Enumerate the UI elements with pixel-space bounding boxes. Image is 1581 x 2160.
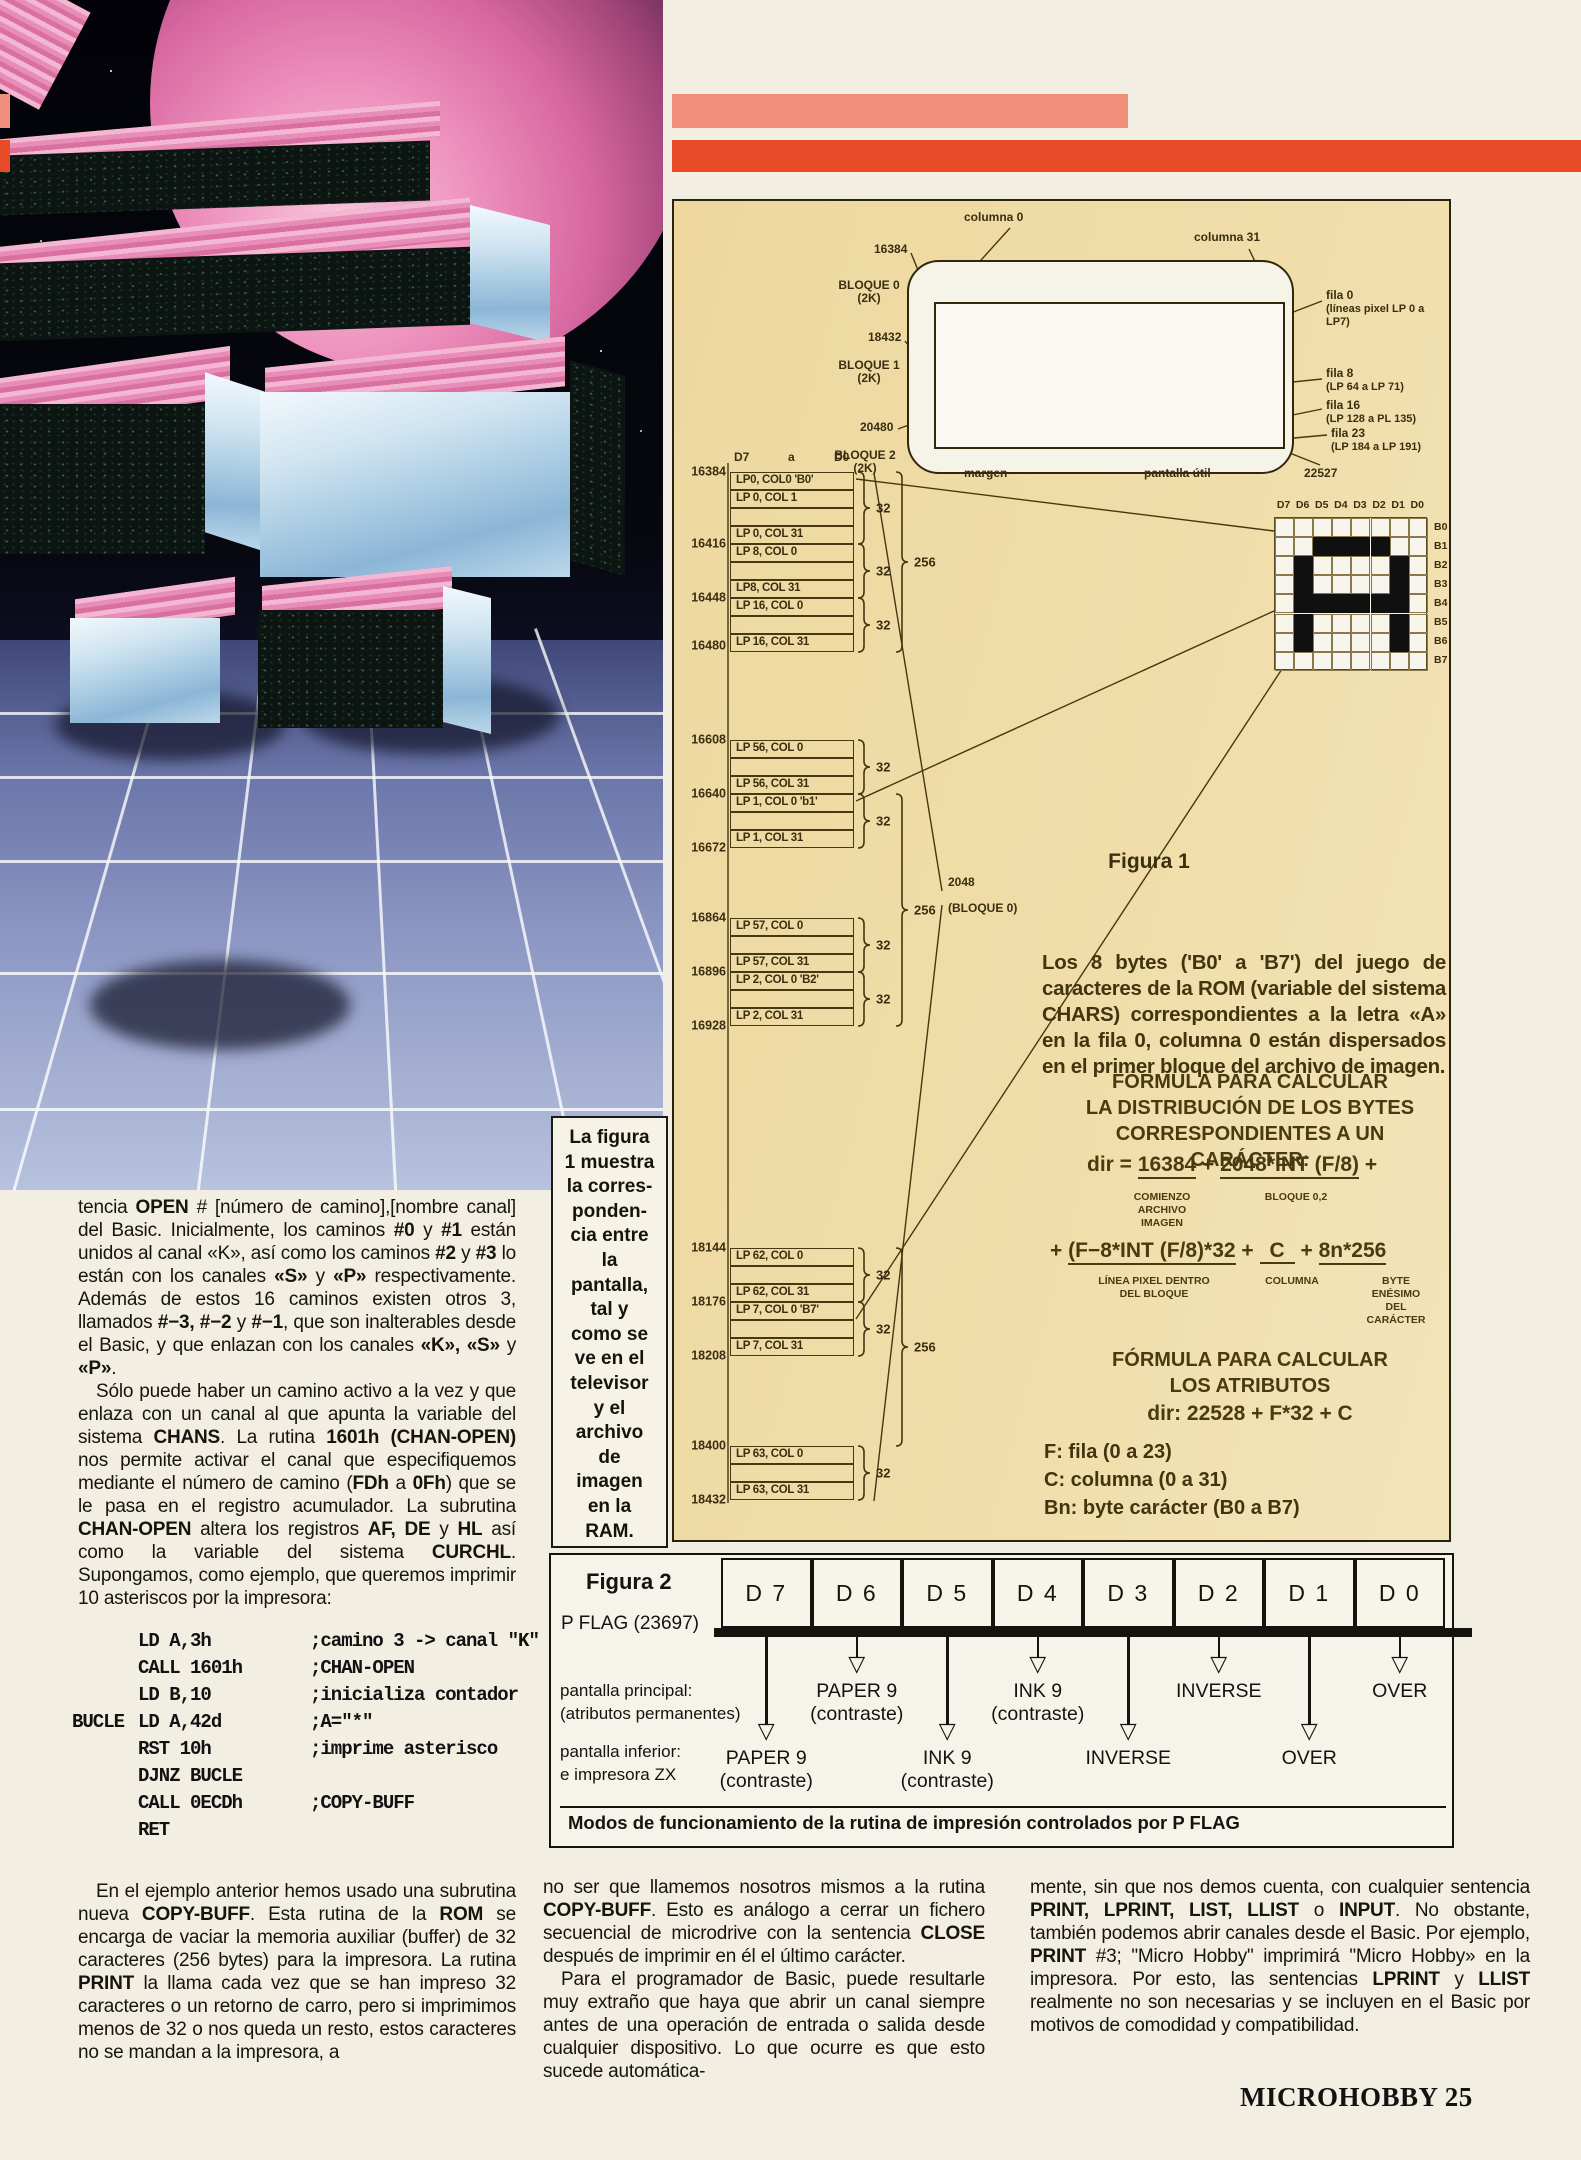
char-grid-cell [1409, 537, 1428, 556]
char-grid-header: D6 [1296, 499, 1309, 511]
char-grid-cell [1351, 594, 1370, 613]
char-grid-cell [1294, 594, 1313, 613]
char-grid-cell [1275, 652, 1294, 671]
memory-map-cell: LP 62, COL 0 [730, 1248, 854, 1266]
char-grid-cell [1390, 652, 1409, 671]
map-brace [858, 918, 870, 972]
pflag-bit-box: D 0 [1355, 1558, 1446, 1628]
memory-map-address: 16480 [691, 638, 726, 652]
memory-map-address: 16608 [691, 732, 726, 746]
char-grid-cell [1351, 518, 1370, 537]
code-line: LD A,3h;camino 3 -> canal "K" [72, 1628, 542, 1655]
block-2048-label: 2048 (BLOQUE 0) [948, 863, 1017, 915]
tv-label-22527: 22527 [1304, 467, 1337, 480]
memory-map-address: 16928 [691, 1018, 726, 1032]
char-grid-cell [1313, 614, 1332, 633]
pflag-mode-label: OVER [1320, 1680, 1480, 1703]
memory-map-cell: LP 57, COL 31 [730, 954, 854, 972]
bus-a: a [788, 451, 795, 464]
row1-subheading: (atributos permanentes) [560, 1704, 740, 1724]
memory-map-cell: LP 7, COL 31 [730, 1338, 854, 1356]
page-footer: MICROHOBBY 25 [1240, 2082, 1473, 2113]
char-grid-row-label: B3 [1434, 578, 1447, 590]
pflag-bit-box: D 4 [993, 1558, 1084, 1628]
memory-map-cell: LP 7, COL 0 'B7' [730, 1302, 854, 1320]
map-brace-label: 32 [876, 618, 890, 633]
char-grid-cell [1371, 594, 1390, 613]
memory-map-cell: LP 16, COL 31 [730, 634, 854, 652]
memory-map-cell [730, 758, 854, 776]
memory-map-address: 16448 [691, 590, 726, 604]
memory-map-cell: LP 0, COL 1 [730, 490, 854, 508]
pflag-mode-label: OVER [1229, 1747, 1389, 1770]
char-grid-cell [1371, 614, 1390, 633]
map-brace-label: 32 [876, 1322, 890, 1337]
cubeB-front [260, 392, 570, 577]
code-line: CALL 0ECDh;COPY-BUFF [72, 1790, 542, 1817]
cubeA-side [205, 372, 265, 551]
legend-c: C: columna (0 a 31) [1044, 1469, 1227, 1492]
char-grid-cell [1313, 537, 1332, 556]
char-grid-cell [1371, 537, 1390, 556]
memory-map-cell: LP 56, COL 0 [730, 740, 854, 758]
char-grid-cell [1275, 575, 1294, 594]
pflag-mode-label: INK 9 (contraste) [958, 1680, 1118, 1726]
char-grid-cell [1275, 556, 1294, 575]
char-grid-header: D7 [1277, 499, 1290, 511]
arrow-down-icon: ▽ [1210, 1654, 1227, 1674]
memory-map-address: 16896 [691, 964, 726, 978]
char-grid-row-label: B2 [1434, 559, 1447, 571]
map-brace [896, 794, 908, 1026]
arrow-down-icon: ▽ [758, 1721, 775, 1741]
char-grid-cell [1409, 518, 1428, 537]
pflag-label: P FLAG (23697) [561, 1613, 699, 1635]
tv-addr-20480: 20480 [860, 421, 893, 434]
formula2-sub1: LÍNEA PIXEL DENTRO DEL BLOQUE [1098, 1275, 1209, 1301]
char-grid-cell [1275, 518, 1294, 537]
char-grid-cell [1351, 633, 1370, 652]
map-brace [858, 740, 870, 794]
formula1: dir = 16384 + 2048*INT (F/8) + [1087, 1153, 1377, 1177]
char-grid-cell [1313, 633, 1332, 652]
code-line: BUCLELD A,42d;A="*" [72, 1709, 542, 1736]
code-line: LD B,10;inicializa contador [72, 1682, 542, 1709]
char-grid-cell [1371, 652, 1390, 671]
char-grid-cell [1313, 594, 1332, 613]
atributos-title: FÓRMULA PARA CALCULAR LOS ATRIBUTOS dir:… [1054, 1347, 1446, 1427]
memory-map-cell: LP 0, COL 31 [730, 526, 854, 544]
char-grid-cell [1371, 518, 1390, 537]
code-line: RET [72, 1817, 542, 1844]
char-grid-cell [1371, 556, 1390, 575]
char-grid-cell [1313, 518, 1332, 537]
paragraph: tencia OPEN # [número de camino],[nombre… [78, 1196, 516, 1380]
memory-map-cell: LP 2, COL 31 [730, 1008, 854, 1026]
char-grid-cell [1409, 633, 1428, 652]
tv-label-columna31: columna 31 [1194, 231, 1260, 244]
char-grid-cell [1275, 537, 1294, 556]
char-grid-cell [1332, 537, 1351, 556]
char-grid-header: D3 [1353, 499, 1366, 511]
char-grid-cell [1390, 594, 1409, 613]
cubeD-side [443, 586, 491, 734]
pflag-arrow-line [1127, 1637, 1130, 1725]
code-line: DJNZ BUCLE [72, 1763, 542, 1790]
char-grid-cell [1294, 652, 1313, 671]
red-stripe [672, 140, 1581, 172]
cubeC-front [70, 618, 220, 723]
tv-screen [934, 302, 1285, 449]
memory-map-cell: LP 1, COL 0 'b1' [730, 794, 854, 812]
char-grid-cell [1390, 518, 1409, 537]
row1-heading: pantalla principal: [560, 1681, 692, 1701]
map-brace [858, 972, 870, 1026]
memory-map-address: 18208 [691, 1348, 726, 1362]
legend-f: F: fila (0 a 23) [1044, 1441, 1172, 1464]
memory-map-cell: LP 8, COL 0 [730, 544, 854, 562]
map-brace-label: 32 [876, 814, 890, 829]
memory-map-address: 18400 [691, 1438, 726, 1452]
row2-subheading: e impresora ZX [560, 1765, 676, 1785]
code-line: RST 10h;imprime asterisco [72, 1736, 542, 1763]
pflag-bit-box: D 7 [721, 1558, 812, 1628]
memory-map-cell: LP 56, COL 31 [730, 776, 854, 794]
char-grid-cell [1332, 633, 1351, 652]
figura2-panel: Figura 2 P FLAG (23697) pantalla princip… [549, 1553, 1454, 1848]
cubeA-front [0, 404, 205, 554]
edge-tab-salmon [0, 94, 10, 128]
char-grid-row-label: B7 [1434, 654, 1447, 666]
formula2-sub2: COLUMNA [1265, 1275, 1319, 1288]
map-brace-label: 32 [876, 501, 890, 516]
map-brace [896, 1248, 908, 1446]
cube-shadow [90, 960, 350, 1050]
memory-map-cell: LP8, COL 31 [730, 580, 854, 598]
memory-map-cell: LP 2, COL 0 'B2' [730, 972, 854, 990]
char-grid-cell [1275, 594, 1294, 613]
map-brace-label: 32 [876, 1466, 890, 1481]
char-grid-cell [1294, 575, 1313, 594]
char-grid-cell [1409, 652, 1428, 671]
memory-map-cell [730, 990, 854, 1008]
memory-map-address: 16384 [691, 464, 726, 478]
map-brace-label: 256 [914, 903, 936, 918]
article-col2: no ser que llamemos nosotros mismos a la… [543, 1876, 985, 2083]
pflag-mode-label: PAPER 9 (contraste) [686, 1747, 846, 1793]
char-grid-cell [1390, 614, 1409, 633]
char-grid-cell [1313, 575, 1332, 594]
pflag-bit-box: D 5 [902, 1558, 993, 1628]
char-grid-cell [1351, 537, 1370, 556]
char-grid-header: D0 [1411, 499, 1424, 511]
arrow-down-icon: ▽ [1391, 1654, 1408, 1674]
memory-map-cell: LP 1, COL 31 [730, 830, 854, 848]
char-grid-cell [1332, 518, 1351, 537]
figura1-caption: Los 8 bytes ('B0' a 'B7') del juego de c… [1042, 950, 1446, 1080]
magazine-page: 32323232323232323232256256256 columna 0 … [0, 0, 1581, 2160]
figura1-label: Figura 1 [1094, 851, 1204, 873]
formula2-line: + (F−8*INT (F/8)*32 + C + 8n*256 [1050, 1239, 1386, 1263]
memory-map-cell: LP0, COL0 'B0' [730, 472, 854, 490]
arrow-down-icon: ▽ [1029, 1654, 1046, 1674]
char-grid-cell [1294, 614, 1313, 633]
sidebar-note: La figura 1 muestra la corres- ponden- c… [551, 1116, 668, 1548]
memory-map-cell: LP 62, COL 31 [730, 1284, 854, 1302]
pflag-bit-box: D 2 [1174, 1558, 1265, 1628]
char-grid-cell [1390, 556, 1409, 575]
slab1-side [470, 205, 550, 343]
char-grid-cell [1409, 614, 1428, 633]
char-grid-cell [1294, 556, 1313, 575]
memory-map-addresses: 1638416416164481648016608166401667216864… [680, 472, 726, 1500]
memory-map-address: 18176 [691, 1294, 726, 1308]
char-grid-cell [1294, 633, 1313, 652]
map-brace-label: 32 [876, 938, 890, 953]
memory-map-address: 16864 [691, 910, 726, 924]
tv-label-columna0: columna 0 [964, 211, 1023, 224]
char-grid-cell [1332, 614, 1351, 633]
char-grid-cell [1351, 652, 1370, 671]
char-grid-cell [1351, 575, 1370, 594]
map-brace-label: 32 [876, 992, 890, 1007]
char-grid [1274, 517, 1427, 670]
map-brace-label: 32 [876, 1268, 890, 1283]
char-grid-cell [1275, 633, 1294, 652]
memory-map-address: 16640 [691, 786, 726, 800]
tv-fila-16: fila 16(LP 128 a PL 135) [1326, 399, 1451, 426]
map-brace [858, 472, 870, 544]
char-grid-cell [1332, 652, 1351, 671]
paragraph: mente, sin que nos demos cuenta, con cua… [1030, 1876, 1530, 2037]
slab1-front [0, 247, 470, 341]
code-line: CALL 1601h;CHAN-OPEN [72, 1655, 542, 1682]
tv-addr-16384: 16384 [874, 243, 907, 256]
map-brace [858, 1248, 870, 1302]
memory-map-address: 18144 [691, 1240, 726, 1254]
char-grid-cell [1390, 633, 1409, 652]
formula1-sub1: COMIENZO ARCHIVO IMAGEN [1134, 1191, 1191, 1230]
cubeB-side [570, 360, 625, 576]
char-grid-cell [1409, 594, 1428, 613]
arrow-down-icon: ▽ [1120, 1721, 1137, 1741]
memory-map-cell [730, 1464, 854, 1482]
tv-fila-0: fila 0(líneas pixel LP 0 a LP7) [1326, 289, 1451, 329]
figura2-caption: Modos de funcionamiento de la rutina de … [568, 1812, 1240, 1834]
char-grid-cell [1313, 652, 1332, 671]
memory-map-address: 16672 [691, 840, 726, 854]
corner-slab [0, 0, 91, 110]
char-grid-cell [1390, 537, 1409, 556]
figura1-panel: 32323232323232323232256256256 columna 0 … [672, 199, 1451, 1542]
memory-map-cells: LP0, COL0 'B0'LP 0, COL 1LP 0, COL 31LP … [730, 472, 854, 1500]
char-grid-cell [1275, 614, 1294, 633]
char-grid-cell [1351, 614, 1370, 633]
map-brace [858, 794, 870, 848]
figura2-label: Figura 2 [586, 1569, 672, 1595]
pflag-mode-label: INVERSE [1139, 1680, 1299, 1703]
article-col1-bottom: En el ejemplo anterior hemos usado una s… [78, 1880, 516, 2064]
paragraph: Sólo puede haber un camino activo a la v… [78, 1380, 516, 1610]
map-brace [858, 1446, 870, 1500]
map-brace-label: 32 [876, 564, 890, 579]
pflag-bit-bar [714, 1628, 1472, 1637]
paragraph: En el ejemplo anterior hemos usado una s… [78, 1880, 516, 2064]
map-brace [858, 1302, 870, 1356]
char-grid-header: D2 [1372, 499, 1385, 511]
code-block: LD A,3h;camino 3 -> canal "K"CALL 1601h;… [72, 1628, 542, 1844]
pflag-arrow-line [1308, 1637, 1311, 1725]
formula2-sub3: BYTE ENÉSIMO DEL CARÁCTER [1367, 1275, 1426, 1327]
char-grid-row-label: B1 [1434, 540, 1447, 552]
arrow-down-icon: ▽ [848, 1654, 865, 1674]
pflag-bit-box: D 3 [1083, 1558, 1174, 1628]
char-grid-cell [1351, 556, 1370, 575]
map-brace [896, 472, 908, 652]
arrow-down-icon: ▽ [1301, 1721, 1318, 1741]
tv-block-0: BLOQUE 0(2K) [824, 279, 914, 305]
memory-map-cell: LP 63, COL 31 [730, 1482, 854, 1500]
tv-label-pantalla-util: pantalla útil [1144, 467, 1211, 480]
article-col1-top: tencia OPEN # [número de camino],[nombre… [78, 1196, 516, 1610]
memory-map-address: 16416 [691, 536, 726, 550]
pflag-arrow-line [946, 1637, 949, 1725]
tv-fila-8: fila 8(LP 64 a LP 71) [1326, 367, 1451, 394]
memory-map-cell [730, 616, 854, 634]
char-grid-cell [1409, 556, 1428, 575]
char-grid-cell [1371, 633, 1390, 652]
memory-map-cell: LP 16, COL 0 [730, 598, 854, 616]
char-grid-header: D5 [1315, 499, 1328, 511]
bus-d7: D7 [734, 451, 749, 464]
char-grid-row-label: B5 [1434, 616, 1447, 628]
char-grid-cell [1332, 594, 1351, 613]
char-grid-cell [1371, 575, 1390, 594]
map-brace [858, 544, 870, 598]
article-col3: mente, sin que nos demos cuenta, con cua… [1030, 1876, 1530, 2037]
pflag-mode-label: INVERSE [1048, 1747, 1208, 1770]
row2-heading: pantalla inferior: [560, 1742, 681, 1762]
edge-tab-red [0, 140, 10, 172]
tv-label-margen: margen [964, 467, 1007, 480]
char-grid-header: D1 [1391, 499, 1404, 511]
cubeD-front [258, 610, 443, 728]
tv-fila-23: fila 23(LP 184 a LP 191) [1331, 427, 1453, 454]
char-grid-cell [1332, 575, 1351, 594]
figura2-caption-rule [560, 1806, 1446, 1808]
bus-d0: D0 [834, 451, 849, 464]
tv-addr-18432: 18432 [868, 331, 901, 344]
memory-map-cell [730, 1320, 854, 1338]
char-grid-cell [1294, 537, 1313, 556]
cover-artwork [0, 0, 663, 1190]
memory-map-cell [730, 936, 854, 954]
char-grid-cell [1294, 518, 1313, 537]
char-grid-row-label: B6 [1434, 635, 1447, 647]
paragraph: Para el programador de Basic, puede resu… [543, 1968, 985, 2083]
char-grid-header: D4 [1334, 499, 1347, 511]
map-brace-label: 32 [876, 760, 890, 775]
char-grid-row-label: B4 [1434, 597, 1447, 609]
memory-map-cell [730, 508, 854, 526]
char-grid-cell [1390, 575, 1409, 594]
pflag-arrow-line [765, 1637, 768, 1725]
memory-map-cell: LP 57, COL 0 [730, 918, 854, 936]
atributos-formula: dir: 22528 + F*32 + C [1054, 1401, 1446, 1427]
char-grid-cell [1332, 556, 1351, 575]
char-grid-cell [1313, 556, 1332, 575]
tv-block-1: BLOQUE 1(2K) [824, 359, 914, 385]
memory-map-cell: LP 63, COL 0 [730, 1446, 854, 1464]
pflag-mode-label: PAPER 9 (contraste) [777, 1680, 937, 1726]
pflag-bit-box: D 6 [812, 1558, 903, 1628]
formula1-sub2: BLOQUE 0,2 [1265, 1191, 1327, 1204]
char-grid-cell [1409, 575, 1428, 594]
pflag-bit-box: D 1 [1264, 1558, 1355, 1628]
paragraph: no ser que llamemos nosotros mismos a la… [543, 1876, 985, 1968]
map-brace-label: 256 [914, 1340, 936, 1355]
map-brace-label: 256 [914, 555, 936, 570]
arrow-down-icon: ▽ [939, 1721, 956, 1741]
memory-map-cell [730, 1266, 854, 1284]
salmon-stripe [672, 94, 1128, 128]
memory-map-address: 18432 [691, 1492, 726, 1506]
pflag-mode-label: INK 9 (contraste) [867, 1747, 1027, 1793]
map-brace [858, 598, 870, 652]
memory-map-cell [730, 562, 854, 580]
memory-map-cell [730, 812, 854, 830]
legend-bn: Bn: byte carácter (B0 a B7) [1044, 1497, 1300, 1520]
char-grid-row-label: B0 [1434, 521, 1447, 533]
